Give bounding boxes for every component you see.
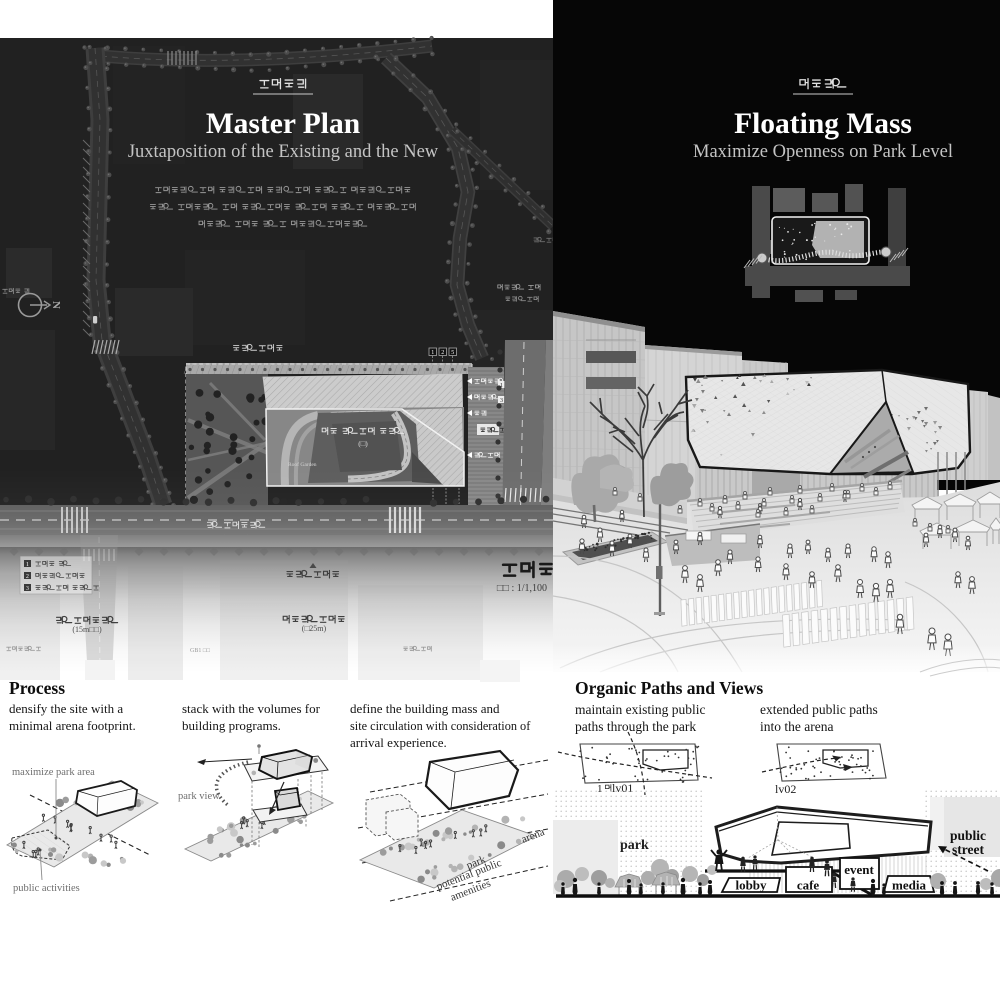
- svg-text:maintain existing public: maintain existing public: [575, 702, 705, 717]
- svg-text:site circulation with consider: site circulation with consideration of: [350, 719, 531, 733]
- svg-text:(□): (□): [358, 439, 368, 448]
- svg-text:densify the site with a: densify the site with a: [9, 701, 123, 716]
- svg-text:Roof Garden: Roof Garden: [288, 461, 317, 468]
- svg-text:Master Plan: Master Plan: [206, 108, 360, 140]
- svg-text:paths through the park: paths through the park: [575, 719, 696, 734]
- svg-text:2: 2: [441, 350, 444, 356]
- svg-text:1: 1: [26, 562, 29, 568]
- svg-text:park view: park view: [178, 791, 220, 802]
- svg-text:cafe: cafe: [797, 878, 820, 893]
- svg-text:□□ : 1/1,100: □□ : 1/1,100: [497, 583, 547, 594]
- svg-text:Floating Mass: Floating Mass: [734, 108, 912, 140]
- svg-text:define the building mass and: define the building mass and: [350, 701, 500, 716]
- svg-text:media: media: [892, 878, 926, 893]
- svg-text:event: event: [844, 862, 874, 877]
- svg-text:lv02: lv02: [775, 782, 796, 796]
- svg-text:3: 3: [26, 586, 29, 592]
- svg-text:extended public paths: extended public paths: [760, 702, 878, 717]
- svg-text:3: 3: [500, 398, 503, 404]
- svg-text:Process: Process: [9, 678, 65, 698]
- svg-text:public activities: public activities: [13, 883, 80, 894]
- svg-text:GB1 □□: GB1 □□: [190, 648, 210, 654]
- svg-text:2: 2: [26, 574, 29, 580]
- svg-text:Juxtaposition of the Existing: Juxtaposition of the Existing and the Ne…: [128, 142, 439, 162]
- svg-text:Organic Paths and Views: Organic Paths and Views: [575, 678, 763, 698]
- svg-text:(15m□□): (15m□□): [72, 625, 102, 634]
- svg-text:N: N: [50, 301, 62, 309]
- svg-text:stack with the volumes for: stack with the volumes for: [182, 701, 321, 716]
- svg-text:5: 5: [451, 350, 454, 356]
- svg-text:(□25m): (□25m): [302, 624, 327, 633]
- svg-text:public: public: [950, 828, 986, 843]
- svg-text:maximize park area: maximize park area: [12, 767, 95, 778]
- svg-text:1: 1: [431, 350, 434, 356]
- svg-text:into the arena: into the arena: [760, 719, 833, 734]
- svg-text:minimal arena footprint.: minimal arena footprint.: [9, 718, 136, 733]
- svg-text:park: park: [620, 838, 649, 853]
- svg-text:Maximize Openness on Park Leve: Maximize Openness on Park Level: [693, 142, 953, 162]
- svg-text:lobby: lobby: [735, 878, 767, 893]
- svg-text:arrival experience.: arrival experience.: [350, 735, 447, 750]
- svg-text:building programs.: building programs.: [182, 718, 281, 733]
